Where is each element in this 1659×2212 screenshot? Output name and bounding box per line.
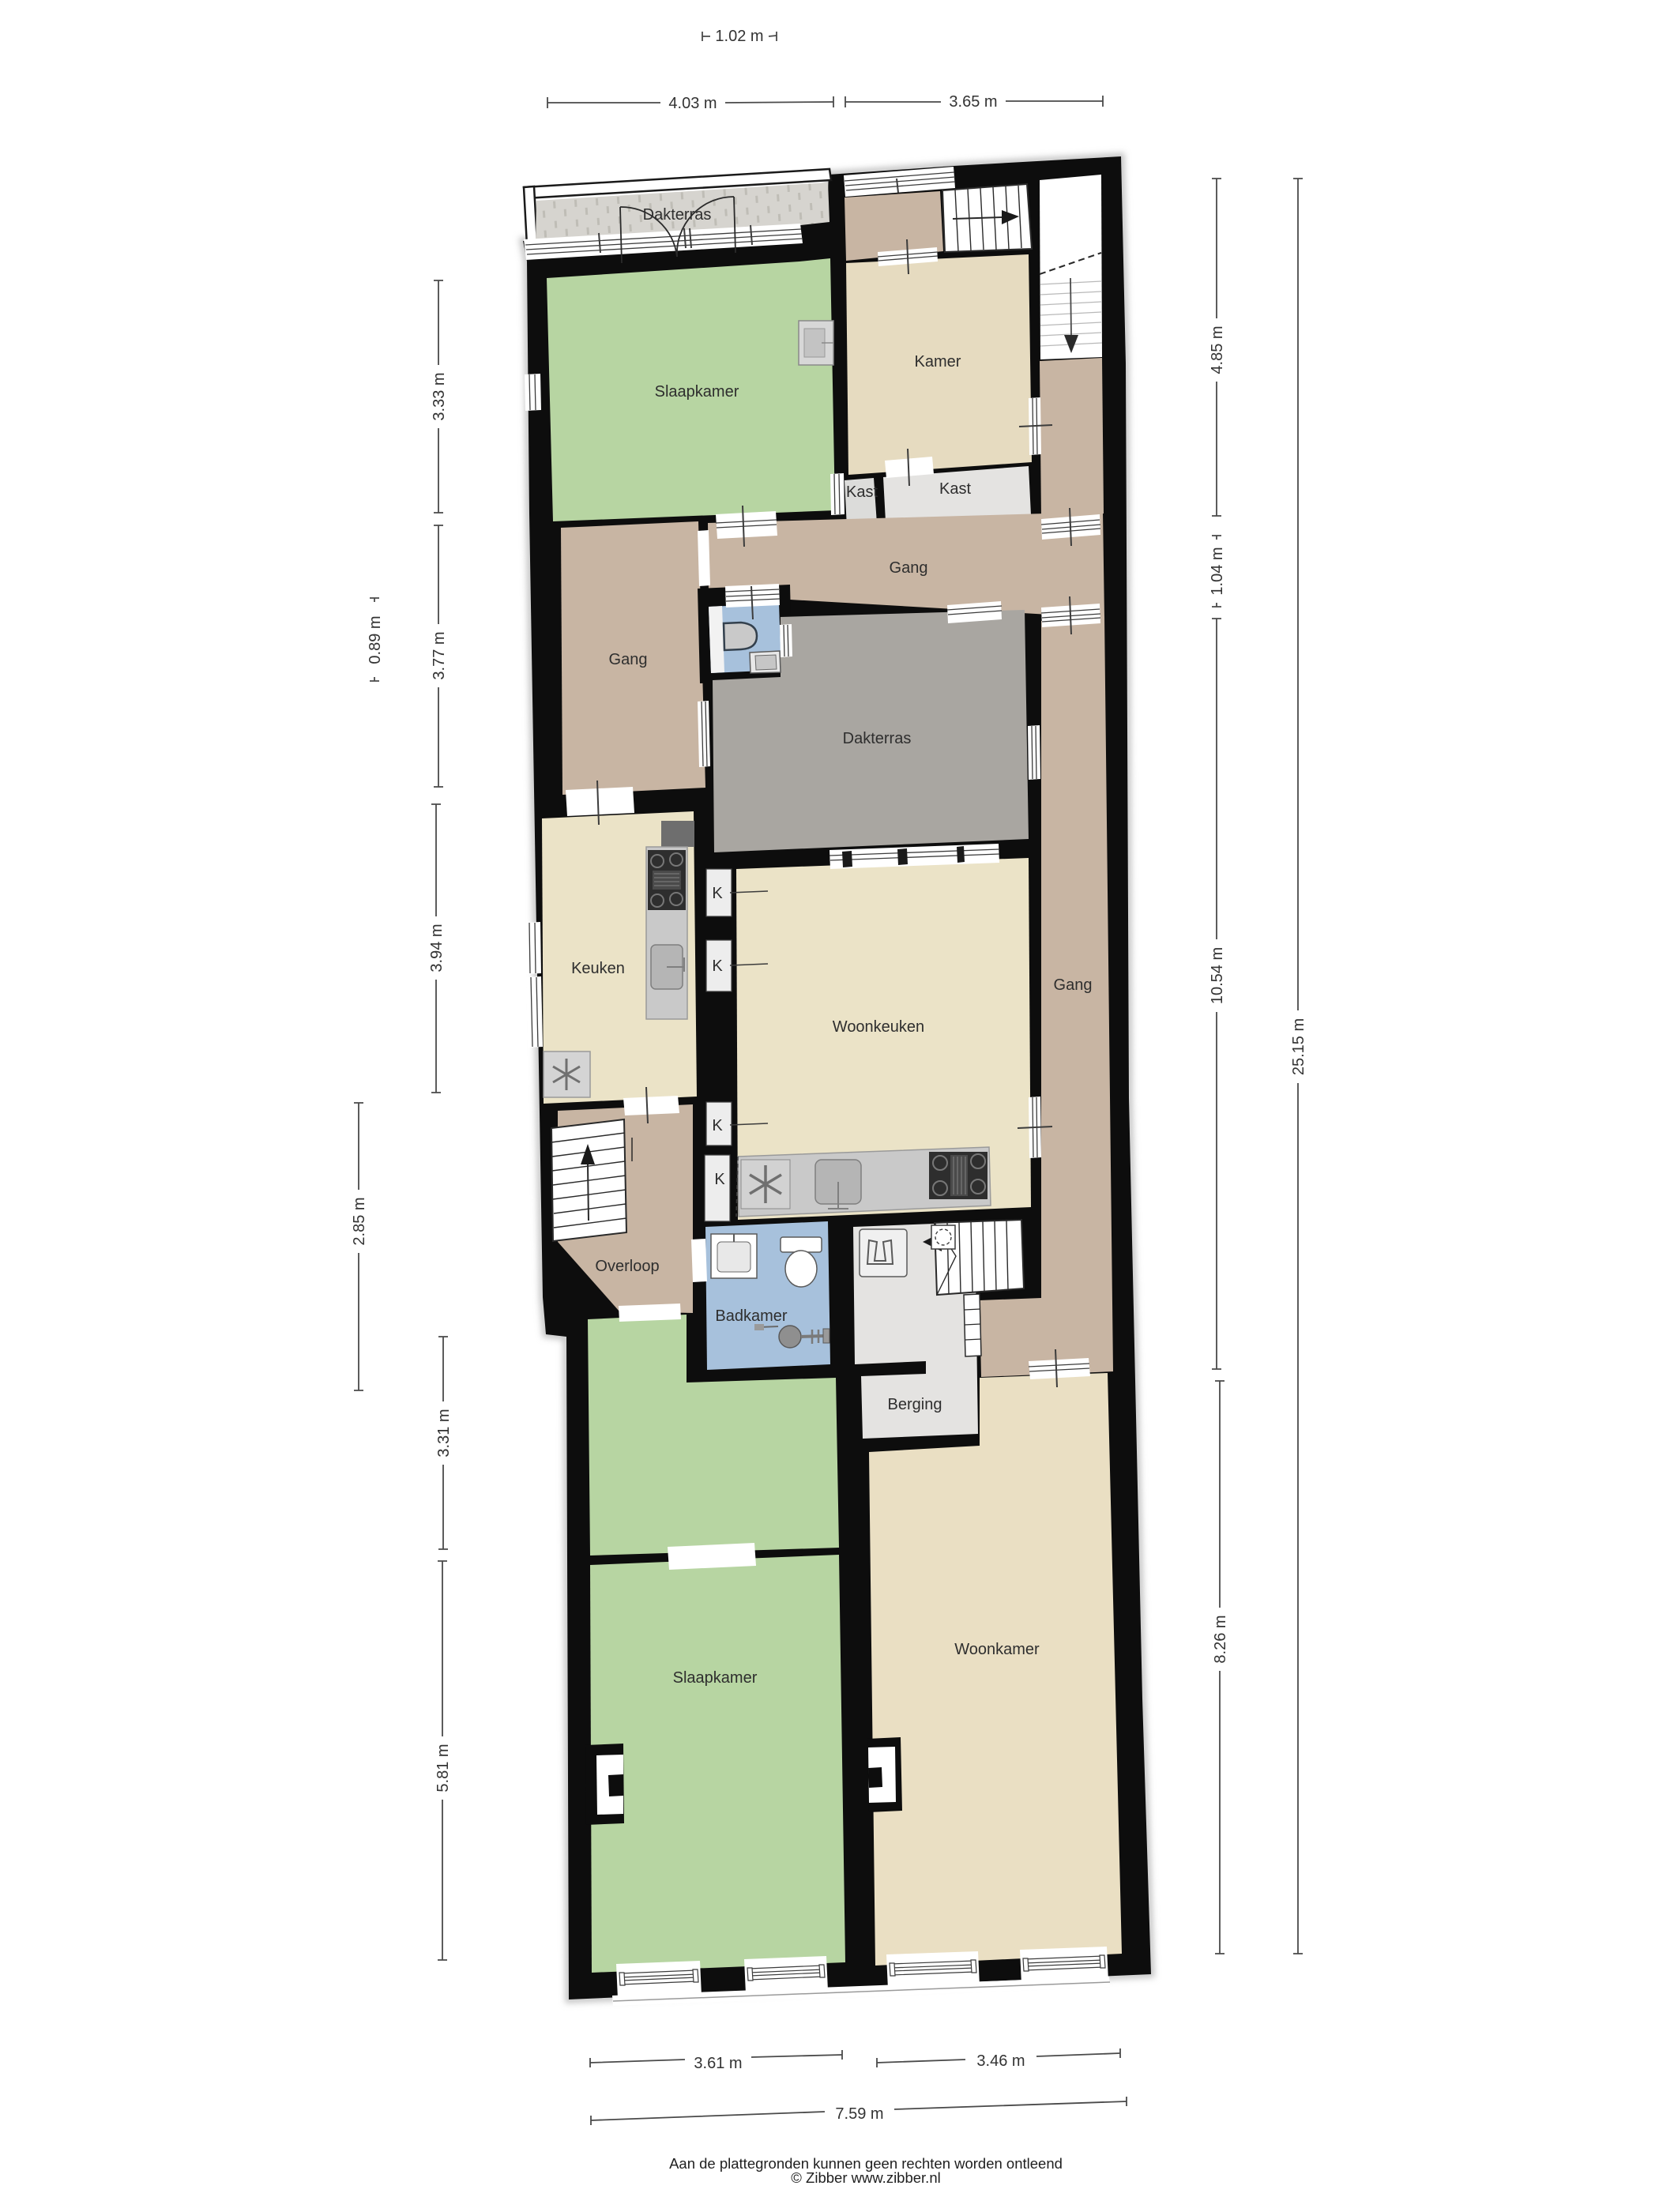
svg-text:Gang: Gang bbox=[609, 651, 648, 668]
svg-text:Gang: Gang bbox=[890, 559, 928, 577]
svg-text:Badkamer: Badkamer bbox=[715, 1307, 787, 1325]
svg-text:3.31 m: 3.31 m bbox=[435, 1409, 453, 1457]
svg-text:7.59 m: 7.59 m bbox=[835, 2105, 883, 2123]
svg-text:© Zibber www.zibber.nl: © Zibber www.zibber.nl bbox=[791, 2169, 940, 2186]
svg-text:Dakterras: Dakterras bbox=[643, 206, 712, 224]
svg-text:Gang: Gang bbox=[1054, 976, 1093, 994]
svg-text:Kast: Kast bbox=[939, 480, 971, 498]
svg-text:0.89 m: 0.89 m bbox=[367, 615, 384, 664]
svg-text:Keuken: Keuken bbox=[571, 960, 625, 977]
svg-text:Overloop: Overloop bbox=[595, 1258, 659, 1275]
svg-text:K: K bbox=[712, 1117, 723, 1134]
svg-text:1.04 m: 1.04 m bbox=[1209, 547, 1226, 595]
svg-text:Dakterras: Dakterras bbox=[843, 730, 912, 747]
svg-text:Slaapkamer: Slaapkamer bbox=[673, 1669, 758, 1687]
svg-text:3.61 m: 3.61 m bbox=[694, 2055, 742, 2072]
svg-text:Woonkeuken: Woonkeuken bbox=[833, 1018, 924, 1036]
svg-text:3.46 m: 3.46 m bbox=[976, 2052, 1025, 2070]
svg-text:Woonkamer: Woonkamer bbox=[954, 1641, 1040, 1658]
svg-text:Kamer: Kamer bbox=[915, 353, 961, 371]
svg-text:K: K bbox=[712, 957, 723, 975]
svg-text:10.54 m: 10.54 m bbox=[1209, 947, 1226, 1004]
svg-text:3.94 m: 3.94 m bbox=[428, 924, 446, 972]
svg-text:1.02 m: 1.02 m bbox=[715, 28, 763, 45]
svg-text:25.15 m: 25.15 m bbox=[1290, 1018, 1307, 1075]
svg-text:3.33 m: 3.33 m bbox=[431, 372, 448, 420]
svg-text:2.85 m: 2.85 m bbox=[351, 1197, 368, 1245]
svg-text:5.81 m: 5.81 m bbox=[434, 1744, 452, 1792]
svg-text:Slaapkamer: Slaapkamer bbox=[655, 383, 739, 401]
svg-text:4.85 m: 4.85 m bbox=[1209, 325, 1226, 374]
svg-text:8.26 m: 8.26 m bbox=[1212, 1615, 1229, 1663]
svg-text:3.65 m: 3.65 m bbox=[949, 93, 997, 111]
svg-text:Kast: Kast bbox=[846, 483, 878, 501]
svg-text:3.77 m: 3.77 m bbox=[431, 631, 448, 679]
svg-text:Berging: Berging bbox=[888, 1396, 942, 1413]
svg-text:K: K bbox=[714, 1171, 725, 1188]
svg-text:K: K bbox=[712, 885, 723, 902]
svg-text:4.03 m: 4.03 m bbox=[668, 95, 717, 112]
